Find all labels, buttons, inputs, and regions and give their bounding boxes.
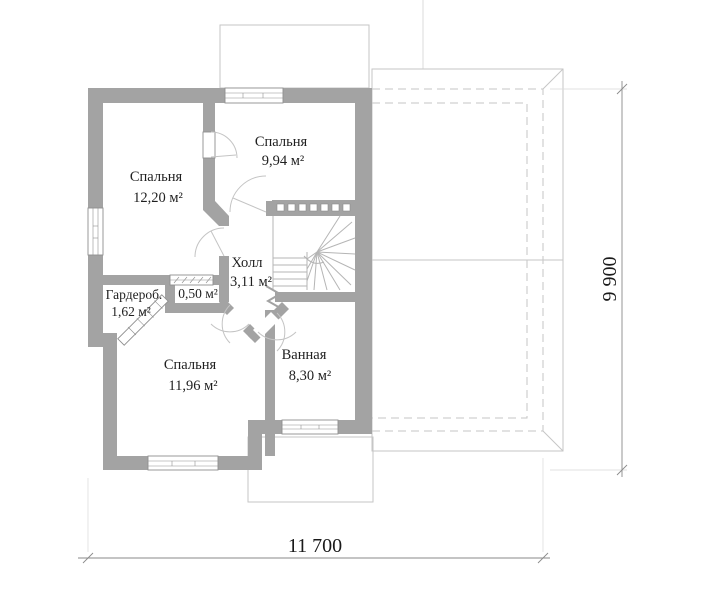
balcony-outline	[220, 25, 369, 88]
window	[88, 208, 103, 255]
room-name: Спальня	[130, 169, 183, 185]
room-area: 11,96 м²	[168, 378, 218, 394]
floor-plan-page: Спальня 12,20 м² Спальня 9,94 м² Холл 3,…	[0, 0, 714, 600]
room-area: 0,50 м²	[178, 286, 218, 301]
room-area: 1,62 м²	[111, 304, 151, 319]
door-arc	[195, 228, 224, 257]
interior-opening	[203, 132, 215, 158]
dimension-height: 9 900	[550, 81, 627, 477]
garage-roof-outline	[372, 0, 563, 451]
window	[282, 420, 338, 434]
room-labels: Спальня 12,20 м² Спальня 9,94 м² Холл 3,…	[106, 134, 332, 394]
door-arc	[230, 176, 266, 212]
room-area: 8,30 м²	[289, 368, 332, 384]
sliding-door	[118, 295, 168, 345]
dimension-width-label: 11 700	[288, 535, 342, 557]
room-area: 9,94 м²	[262, 153, 305, 169]
room-name: Холл	[231, 255, 262, 271]
interior-opening	[170, 275, 213, 285]
window	[148, 456, 218, 470]
stair-railing	[277, 204, 350, 211]
room-name: Ванная	[282, 347, 327, 363]
room-name: Спальня	[164, 357, 217, 373]
room-name: Гардероб.	[106, 287, 163, 302]
dimension-width: 11 700	[78, 458, 550, 563]
room-area: 3,11 м²	[230, 274, 273, 290]
floor-plan-drawing: Спальня 12,20 м² Спальня 9,94 м² Холл 3,…	[0, 0, 714, 600]
room-name: Спальня	[255, 134, 308, 150]
window	[225, 88, 283, 103]
dimension-height-label: 9 900	[599, 257, 621, 302]
room-area: 12,20 м²	[133, 190, 183, 206]
